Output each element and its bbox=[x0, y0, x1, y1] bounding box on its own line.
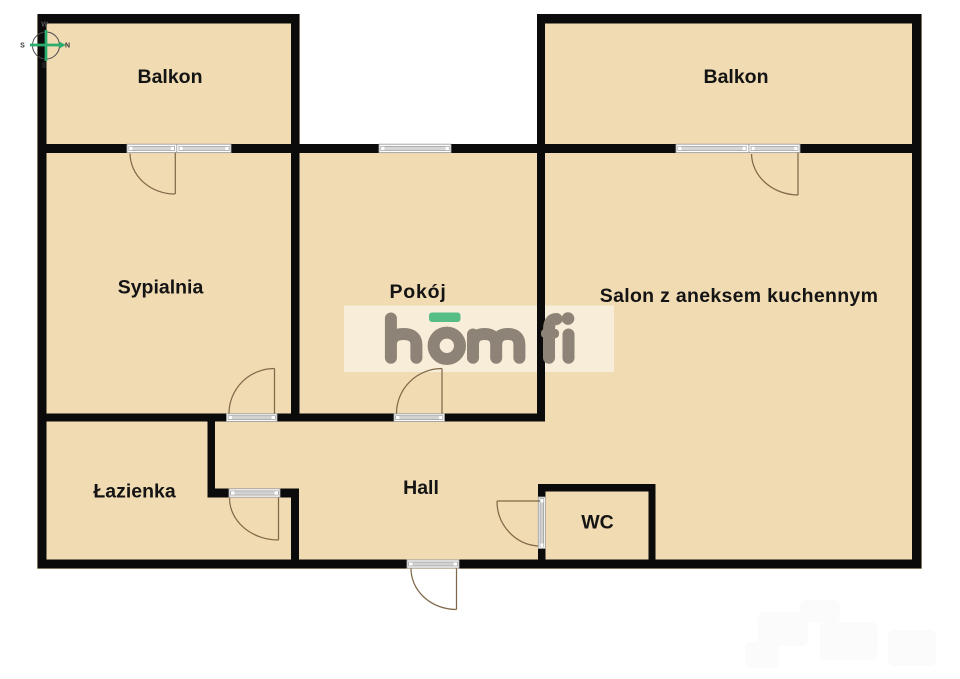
svg-text:E: E bbox=[42, 63, 47, 70]
svg-text:Balkon: Balkon bbox=[137, 66, 202, 88]
svg-text:Pokój: Pokój bbox=[389, 281, 446, 303]
svg-text:Balkon: Balkon bbox=[703, 66, 768, 88]
svg-text:W: W bbox=[41, 22, 48, 29]
svg-text:Łazienka: Łazienka bbox=[93, 481, 176, 503]
svg-text:N: N bbox=[65, 43, 70, 50]
svg-text:Sypialnia: Sypialnia bbox=[118, 277, 204, 299]
svg-text:Salon z aneksem kuchennym: Salon z aneksem kuchennym bbox=[600, 285, 878, 307]
svg-text:S: S bbox=[20, 43, 25, 50]
svg-text:WC: WC bbox=[581, 512, 614, 534]
svg-text:Hall: Hall bbox=[403, 477, 439, 499]
